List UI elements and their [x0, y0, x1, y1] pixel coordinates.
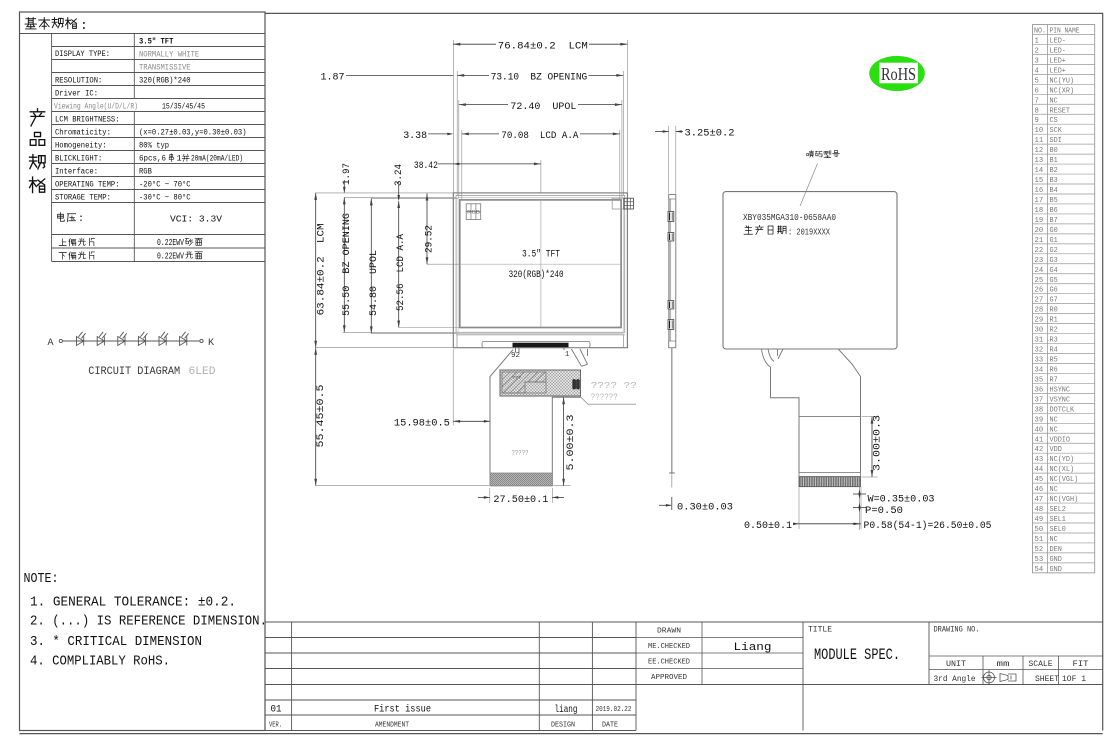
svg-text:41: 41: [1035, 436, 1044, 444]
svg-text:B3: B3: [1050, 177, 1058, 185]
svg-text:NOTE:: NOTE:: [24, 572, 59, 587]
svg-text:48: 48: [1035, 506, 1044, 514]
svg-text:2. (...) IS REFERENCE DIMENSIO: 2. (...) IS REFERENCE DIMENSION.: [30, 615, 267, 630]
svg-text:6: 6: [1035, 87, 1039, 95]
svg-text:G2: G2: [1050, 247, 1058, 255]
svg-text:STORAGE TEMP:: STORAGE TEMP:: [55, 193, 111, 203]
svg-text:B7: B7: [1050, 217, 1058, 225]
svg-text:0.22EWV: 0.22EWV: [157, 252, 184, 262]
svg-text:R2: R2: [1050, 327, 1058, 335]
svg-text:SEL1: SEL1: [1050, 516, 1066, 524]
svg-text:34: 34: [1035, 366, 1044, 374]
svg-text:76.84±0.2 LCM: 76.84±0.2 LCM: [498, 40, 588, 52]
svg-text:(x=0.27±0.03,y=0.30±0.03): (x=0.27±0.03,y=0.30±0.03): [139, 128, 247, 138]
svg-text:53: 53: [1035, 556, 1044, 564]
svg-text:36: 36: [1035, 386, 1044, 394]
svg-text:RGB: RGB: [467, 209, 481, 216]
svg-text:35: 35: [1035, 376, 1044, 384]
svg-text:DEN: DEN: [1050, 546, 1062, 554]
svg-text:40: 40: [1035, 426, 1044, 434]
svg-text:GND: GND: [1050, 556, 1062, 564]
svg-text:42: 42: [1035, 446, 1044, 454]
svg-text:13: 13: [1035, 157, 1044, 165]
svg-text:Liang: Liang: [734, 642, 772, 654]
svg-text:320(RGB)*240: 320(RGB)*240: [509, 269, 564, 281]
svg-text::: :: [78, 214, 84, 225]
svg-text:EE.CHECKED: EE.CHECKED: [648, 659, 690, 667]
svg-text:01: 01: [271, 704, 282, 716]
svg-text:SCALE: SCALE: [1029, 659, 1053, 669]
svg-text:LED+: LED+: [1050, 67, 1066, 75]
svg-text:ME.CHECKED: ME.CHECKED: [648, 643, 690, 651]
svg-text:52: 52: [1035, 546, 1044, 554]
svg-text:14: 14: [1035, 167, 1044, 175]
svg-text:Chromaticity:: Chromaticity:: [55, 128, 111, 138]
svg-text:SEL2: SEL2: [1050, 506, 1066, 514]
svg-text:20: 20: [1035, 227, 1044, 235]
svg-text:10: 10: [1035, 127, 1044, 135]
svg-text:XBY035MGA310-0658AA0: XBY035MGA310-0658AA0: [743, 212, 836, 223]
svg-text:DRAWN: DRAWN: [657, 628, 681, 636]
svg-text:1: 1: [1035, 37, 1039, 45]
svg-text:DATE: DATE: [602, 722, 618, 730]
svg-text:R0: R0: [1050, 307, 1058, 315]
svg-text:55.50 BZ OPENING: 55.50 BZ OPENING: [341, 213, 353, 316]
svg-text:50: 50: [1035, 526, 1044, 534]
svg-text:NC(VGL): NC(VGL): [1050, 476, 1079, 484]
svg-text:NC: NC: [1050, 536, 1059, 544]
svg-text:5: 5: [1035, 77, 1039, 85]
svg-text:2: 2: [1035, 47, 1039, 55]
svg-text:38.42: 38.42: [414, 160, 438, 172]
svg-text:3.25±0.2: 3.25±0.2: [685, 128, 735, 140]
svg-text:8: 8: [1035, 107, 1039, 115]
svg-text:First issue: First issue: [374, 704, 431, 716]
svg-text:AMENDMENT: AMENDMENT: [375, 722, 409, 730]
svg-text:???? ??: ???? ??: [591, 380, 637, 391]
svg-text:4. COMPLIABLY RoHS.: 4. COMPLIABLY RoHS.: [30, 655, 170, 670]
svg-text:45: 45: [1035, 476, 1044, 484]
svg-text:21: 21: [1035, 237, 1044, 245]
svg-text:27.50±0.1: 27.50±0.1: [493, 494, 548, 506]
svg-text:6pcs,6: 6pcs,6: [139, 154, 166, 164]
svg-text:30: 30: [1035, 327, 1044, 335]
svg-text:G5: G5: [1050, 277, 1058, 285]
svg-text:23: 23: [1035, 257, 1044, 265]
svg-text:VER.: VER.: [269, 722, 282, 730]
svg-text:3.38: 3.38: [403, 130, 427, 142]
svg-text:12: 12: [1035, 147, 1044, 155]
svg-text:29.52: 29.52: [424, 225, 436, 253]
svg-text:VDD: VDD: [1050, 446, 1062, 454]
svg-text:DOTCLK: DOTCLK: [1050, 406, 1075, 414]
svg-text:49: 49: [1035, 516, 1044, 524]
svg-text:R1: R1: [1050, 317, 1058, 325]
svg-text:CS: CS: [1050, 117, 1058, 125]
svg-text:HSYNC: HSYNC: [1050, 386, 1071, 394]
svg-text:DESIGN: DESIGN: [551, 722, 575, 730]
svg-text:39: 39: [1035, 416, 1044, 424]
svg-text:3rd Angle: 3rd Angle: [934, 674, 976, 684]
svg-text:31: 31: [1035, 337, 1044, 345]
svg-text:SEL0: SEL0: [1050, 526, 1066, 534]
svg-text:38: 38: [1035, 406, 1044, 414]
svg-text:1: 1: [177, 154, 182, 164]
svg-text:0.22EWV: 0.22EWV: [157, 238, 184, 248]
svg-text:K: K: [208, 338, 214, 349]
svg-text:R4: R4: [1050, 347, 1058, 355]
svg-text:B5: B5: [1050, 197, 1058, 205]
svg-text:R6: R6: [1050, 366, 1058, 374]
svg-text:NO.: NO.: [1034, 28, 1046, 36]
svg-text:SHEET: SHEET: [1035, 674, 1059, 684]
svg-text:26: 26: [1035, 287, 1044, 295]
svg-text:DRAWING NO.: DRAWING NO.: [934, 626, 980, 635]
svg-text:1.87: 1.87: [321, 72, 345, 84]
svg-text:mm: mm: [997, 659, 1010, 669]
svg-text:R3: R3: [1050, 337, 1058, 345]
svg-text:4: 4: [1035, 67, 1039, 75]
svg-text:54.80 UPOL: 54.80 UPOL: [368, 250, 380, 316]
svg-text:LED-: LED-: [1050, 47, 1066, 55]
svg-text:A: A: [48, 338, 54, 349]
svg-text:TITLE: TITLE: [808, 626, 832, 635]
svg-text:17: 17: [1035, 197, 1044, 205]
svg-text:NC(XL): NC(XL): [1050, 466, 1075, 474]
svg-text:G6: G6: [1050, 287, 1058, 295]
svg-text:16: 16: [1035, 187, 1044, 195]
svg-text:GND: GND: [1050, 566, 1062, 574]
svg-text:51: 51: [1035, 536, 1044, 544]
svg-text:3.5″ TFT: 3.5″ TFT: [139, 37, 173, 47]
svg-text:P=0.50: P=0.50: [865, 505, 903, 517]
svg-text:liang: liang: [555, 704, 578, 716]
svg-text:28: 28: [1035, 307, 1044, 315]
svg-text:LED-: LED-: [1050, 37, 1066, 45]
svg-text:B1: B1: [1050, 157, 1058, 165]
svg-text:47: 47: [1035, 496, 1044, 504]
svg-text:NC: NC: [1050, 97, 1059, 105]
svg-text:1.97: 1.97: [341, 163, 353, 185]
svg-text:?????: ?????: [512, 450, 529, 458]
svg-text::: :: [80, 18, 88, 33]
svg-text:24: 24: [1035, 267, 1044, 275]
svg-text:0.50±0.1: 0.50±0.1: [744, 520, 792, 532]
svg-text:33: 33: [1035, 357, 1044, 365]
svg-text:32: 32: [1035, 347, 1044, 355]
svg-text:RESET: RESET: [1050, 107, 1071, 115]
svg-text:54: 54: [1035, 566, 1044, 574]
svg-text:OPERATING TEMP:: OPERATING TEMP:: [55, 180, 120, 190]
svg-text:G7: G7: [1050, 297, 1058, 305]
svg-text:37: 37: [1035, 396, 1044, 404]
svg-text:CIRCUIT DIAGRAM: CIRCUIT DIAGRAM: [88, 366, 180, 378]
svg-text:MODULE SPEC.: MODULE SPEC.: [814, 646, 900, 664]
svg-text:18: 18: [1035, 207, 1044, 215]
svg-text:11: 11: [1035, 137, 1044, 145]
svg-text:1. GENERAL TOLERANCE: ±0.2.: 1. GENERAL TOLERANCE: ±0.2.: [30, 596, 236, 611]
svg-text:RESOLUTION:: RESOLUTION:: [55, 76, 102, 86]
svg-text:RoHS: RoHS: [881, 64, 916, 84]
svg-text:0.30±0.03: 0.30±0.03: [677, 502, 733, 514]
svg-text:SDI: SDI: [1050, 137, 1062, 145]
svg-text:B0: B0: [1050, 147, 1058, 155]
svg-text:NC: NC: [1050, 426, 1059, 434]
svg-text:B2: B2: [1050, 167, 1058, 175]
svg-text:320(RGB)*240: 320(RGB)*240: [139, 76, 191, 86]
svg-text:80% typ: 80% typ: [139, 141, 169, 151]
svg-text:NC(VGH): NC(VGH): [1050, 496, 1079, 504]
svg-text:VDDIO: VDDIO: [1050, 436, 1071, 444]
svg-text:-30°C ~ 80°C: -30°C ~ 80°C: [139, 193, 191, 203]
svg-text:3.00±0.3: 3.00±0.3: [872, 415, 884, 471]
svg-text:3. * CRITICAL DIMENSION: 3. * CRITICAL DIMENSION: [30, 635, 202, 650]
svg-text:22: 22: [1035, 247, 1044, 255]
svg-text:70.08 LCD A.A: 70.08 LCD A.A: [501, 130, 579, 142]
svg-text:LED+: LED+: [1050, 57, 1066, 65]
svg-text:9: 9: [1035, 117, 1039, 125]
svg-text:19: 19: [1035, 217, 1044, 225]
svg-text:NC(YD): NC(YD): [1050, 456, 1075, 464]
svg-text:73.10 BZ OPENING: 73.10 BZ OPENING: [491, 72, 588, 84]
svg-text:TRANSMISSIVE: TRANSMISSIVE: [139, 63, 191, 73]
svg-text:P0.58(54-1)=26.50±0.05: P0.58(54-1)=26.50±0.05: [864, 520, 992, 532]
svg-text:44: 44: [1035, 466, 1044, 474]
svg-text:PIN NAME: PIN NAME: [1050, 28, 1080, 36]
svg-text:-20°C ~ 70°C: -20°C ~ 70°C: [139, 180, 191, 190]
svg-text:1OF 1: 1OF 1: [1062, 674, 1086, 684]
svg-text:NC(YU): NC(YU): [1050, 77, 1075, 85]
svg-text:DISPLAY TYPE:: DISPLAY TYPE:: [55, 49, 110, 59]
svg-text:27: 27: [1035, 297, 1044, 305]
svg-text:B4: B4: [1050, 187, 1058, 195]
svg-text:G1: G1: [1050, 237, 1058, 245]
svg-text:3.5″ TFT: 3.5″ TFT: [522, 249, 560, 261]
svg-text:W=0.35±0.03: W=0.35±0.03: [868, 494, 935, 506]
svg-text:: 2019XXXX: : 2019XXXX: [788, 227, 830, 238]
svg-text:LCM BRIGHTNESS:: LCM BRIGHTNESS:: [55, 115, 120, 125]
svg-text:NORMALLY WHITE: NORMALLY WHITE: [139, 50, 199, 60]
svg-text:R7: R7: [1050, 376, 1058, 384]
svg-text:2019.02.22: 2019.02.22: [596, 706, 632, 714]
svg-text:15: 15: [1035, 177, 1044, 185]
svg-text:VSYNC: VSYNC: [1050, 396, 1071, 404]
svg-text:Homogeneity:: Homogeneity:: [55, 141, 107, 151]
svg-text:Viewing Angle(U/D/L/R): Viewing Angle(U/D/L/R): [54, 102, 138, 112]
svg-text:RGB: RGB: [139, 167, 152, 177]
svg-text:46: 46: [1035, 486, 1044, 494]
svg-text:??????: ??????: [591, 392, 618, 403]
svg-text:NC: NC: [1050, 486, 1059, 494]
svg-text:R5: R5: [1050, 357, 1058, 365]
svg-text:1: 1: [565, 351, 569, 359]
svg-text:29: 29: [1035, 317, 1044, 325]
svg-text:Interface:: Interface:: [55, 167, 98, 177]
svg-text:VCI: 3.3V: VCI: 3.3V: [170, 214, 222, 225]
svg-text:Driver IC:: Driver IC:: [55, 89, 98, 99]
svg-text:FIT: FIT: [1073, 659, 1089, 669]
svg-text:APPROVED: APPROVED: [651, 674, 687, 682]
svg-text:SCK: SCK: [1050, 127, 1063, 135]
svg-text:NC(XR): NC(XR): [1050, 87, 1075, 95]
svg-text:20mA(20mA/LED): 20mA(20mA/LED): [191, 154, 243, 164]
svg-text:5.00±0.3: 5.00±0.3: [565, 415, 577, 471]
svg-text:BLICKLIGHT:: BLICKLIGHT:: [55, 154, 102, 164]
svg-text:15/35/45/45: 15/35/45/45: [162, 102, 205, 112]
svg-text:7: 7: [1035, 97, 1039, 105]
svg-text:55.45±0.5: 55.45±0.5: [315, 385, 327, 448]
svg-text:3.24: 3.24: [393, 164, 405, 186]
svg-text:B6: B6: [1050, 207, 1058, 215]
svg-text:G4: G4: [1050, 267, 1058, 275]
svg-text:UNIT: UNIT: [946, 659, 966, 669]
svg-text:43: 43: [1035, 456, 1044, 464]
svg-text:NC: NC: [1050, 416, 1059, 424]
svg-text:52.56 LCD A.A: 52.56 LCD A.A: [395, 233, 407, 311]
svg-text:92: 92: [511, 352, 520, 360]
svg-text:6LED: 6LED: [189, 366, 216, 378]
svg-text:???: ???: [512, 375, 521, 381]
svg-text:G0: G0: [1050, 227, 1058, 235]
svg-text:63.84±0.2 LCM: 63.84±0.2 LCM: [316, 223, 328, 315]
svg-text:3: 3: [1035, 57, 1039, 65]
svg-text:15.98±0.5: 15.98±0.5: [394, 418, 450, 430]
svg-text:25: 25: [1035, 277, 1044, 285]
svg-text:72.40 UPOL: 72.40 UPOL: [510, 101, 576, 113]
svg-text:G3: G3: [1050, 257, 1058, 265]
